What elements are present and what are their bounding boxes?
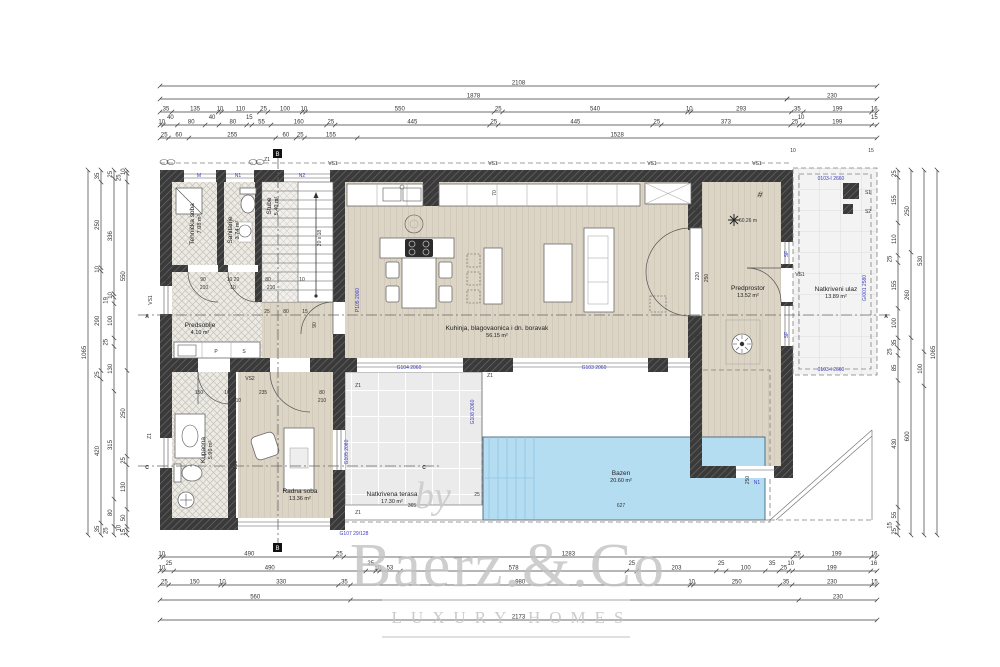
- entrance-floor: [793, 168, 877, 375]
- annotation-label: 25: [264, 309, 270, 315]
- annotation-label: 210: [233, 398, 242, 404]
- dimension-label: 10: [787, 561, 794, 567]
- dimension-label: 100: [280, 107, 291, 113]
- annotation-label: 175: [695, 206, 701, 215]
- room-area: 5.96 m²: [208, 441, 214, 460]
- code-label: SF: [784, 251, 790, 257]
- dimension-label: 490: [244, 552, 255, 558]
- dimension-label: 100: [892, 317, 898, 328]
- dimension-label: 25: [327, 120, 334, 126]
- annotation-label: Z1: [487, 373, 493, 379]
- annotation-label: 220: [695, 272, 701, 281]
- dimension-label: 25: [108, 170, 114, 177]
- annotation-label: C: [145, 465, 149, 471]
- dimension-label: 15: [888, 521, 894, 528]
- dimension-label: 2108: [512, 81, 526, 87]
- dimension-label: 199: [832, 107, 843, 113]
- toilet-tank: [240, 188, 256, 194]
- cooktop: [405, 239, 433, 257]
- annotation-label: 10: [790, 148, 796, 154]
- dimension-label: 15: [121, 528, 127, 535]
- annotation-label: 20 x 18: [317, 230, 323, 247]
- annotation-label: 210: [200, 285, 209, 291]
- dimension-label: 336: [108, 230, 114, 241]
- sofa: [584, 228, 614, 312]
- annotation-label: 90: [200, 277, 206, 283]
- dimension-label: 290: [95, 315, 101, 326]
- annotation-label: 10: [230, 285, 236, 291]
- dimension-label: 130: [121, 481, 127, 492]
- annotation-label: 15: [302, 309, 308, 315]
- room-area: 17.30 m²: [381, 499, 403, 505]
- dimension-label: 600: [905, 431, 911, 442]
- svg-text:B: B: [275, 152, 279, 158]
- annotation-label: 80: [319, 390, 325, 396]
- annotation-label: 235: [259, 390, 268, 396]
- annotation-label: C: [422, 465, 426, 471]
- watermark-tagline: LUXURY HOMES: [391, 608, 632, 627]
- annotation-label: 250: [745, 476, 751, 485]
- watermark-by: by: [415, 475, 451, 517]
- code-label: SF: [784, 332, 790, 338]
- dimension-label: 490: [265, 566, 276, 572]
- room-area: 3.74 m²: [235, 221, 241, 240]
- dimension-label: 80: [108, 509, 114, 516]
- dimension-label: 85: [892, 364, 898, 371]
- dimension-label: 250: [95, 219, 101, 230]
- annotation-label: 627: [617, 503, 626, 509]
- dimension-label: 540: [590, 107, 601, 113]
- annotation-label: 80: [265, 277, 271, 283]
- annotation-label: 35: [163, 277, 169, 283]
- dimension-label: 80: [188, 120, 195, 126]
- code-label: N2: [299, 173, 306, 179]
- chair: [439, 262, 452, 278]
- room-label: Radna soba: [282, 488, 317, 495]
- dimension-label: 25: [165, 561, 172, 567]
- annotation-label: 25: [474, 492, 480, 498]
- dimension-label: 25: [95, 371, 101, 378]
- dimension-label: 25: [718, 561, 725, 567]
- dimension-label: 10: [217, 107, 224, 113]
- dimension-label: 16: [871, 561, 878, 567]
- annotation-label: VS1: [752, 161, 762, 167]
- room-label: Stube: [266, 197, 273, 214]
- dimension-label: 420: [95, 445, 101, 456]
- dimension-label: 100: [108, 315, 114, 326]
- column: [423, 182, 439, 206]
- annotation-label: VS1: [488, 161, 498, 167]
- room-label: Natkriveni ulaz: [815, 286, 858, 293]
- annotation-label: 10 20: [227, 277, 240, 283]
- annotation-label: A: [884, 314, 888, 320]
- dimension-label: 203: [671, 566, 682, 572]
- code-label: G104 2060: [397, 365, 422, 371]
- dimension-label: 35: [341, 580, 348, 586]
- floor-plan-canvas: #: [0, 0, 1000, 667]
- dimension-label: 230: [827, 94, 838, 100]
- annotation-label: Z1: [355, 383, 361, 389]
- annotation-label: 10: [299, 277, 305, 283]
- dimension-label: 25: [491, 120, 498, 126]
- annotation-label: VS2: [245, 376, 255, 382]
- stair-landing-floor: [262, 302, 333, 365]
- dimension-label: 25: [888, 348, 894, 355]
- room-label: Kupaona: [200, 437, 207, 463]
- dimension-label: 10: [686, 107, 693, 113]
- dimension-label: 25: [161, 580, 168, 586]
- dimension-label: 10: [798, 115, 805, 121]
- code-label: N1: [235, 173, 242, 179]
- annotation-label: S2: [865, 209, 871, 215]
- code-label: P105 2060: [355, 288, 361, 312]
- dimension-label: 25: [297, 133, 304, 139]
- room-label: Bazen: [612, 470, 631, 477]
- dimension-label: 250: [121, 408, 127, 419]
- dimension-label: 155: [892, 195, 898, 206]
- annotation-label: 80: [283, 309, 289, 315]
- dimension-label: 445: [570, 120, 581, 126]
- dimension-label: 35: [783, 580, 790, 586]
- chair: [386, 286, 399, 302]
- toilet: [182, 465, 202, 481]
- annotation-label: S1: [865, 190, 871, 196]
- code-label: N1: [754, 480, 761, 486]
- annotation-label: A: [145, 314, 149, 320]
- room-label: Predsoblje: [185, 322, 216, 329]
- dining-table: [402, 258, 436, 308]
- dimension-label: 40: [167, 115, 174, 121]
- dimension-label: 260: [905, 289, 911, 300]
- dimension-label: 1528: [610, 133, 624, 139]
- dimension-label: 25: [495, 107, 502, 113]
- annotation-label: 250: [704, 274, 710, 283]
- toilet: [241, 195, 255, 213]
- dimension-label: 10: [158, 120, 165, 126]
- dimension-label: 110: [892, 234, 898, 244]
- dimension-label: 550: [121, 271, 127, 282]
- dimension-label: 15: [246, 115, 253, 121]
- dimension-label: 100: [918, 363, 924, 374]
- dimension-label: 135: [190, 107, 201, 113]
- annotation-label: 210: [318, 398, 327, 404]
- watermark-name: Baerz.&.Co: [350, 532, 666, 600]
- dimension-label: 25: [104, 527, 110, 534]
- code-label: G108 2060: [470, 399, 476, 424]
- dimension-label: 40: [209, 115, 216, 121]
- terrace-floor: [345, 372, 482, 505]
- dimension-label: 315: [108, 439, 114, 450]
- room-area: 5.40 m²: [274, 197, 280, 216]
- chair: [439, 286, 452, 302]
- dimension-label: 199: [832, 552, 843, 558]
- dimension-label: 160: [294, 120, 305, 126]
- console: [484, 248, 502, 304]
- dimension-label: 330: [276, 580, 287, 586]
- annotation-label: 210: [267, 285, 276, 291]
- annotation-label: Z1: [147, 433, 153, 439]
- dimension-label: 10: [219, 580, 226, 586]
- dimension-label: 25: [888, 255, 894, 262]
- dimension-label: 430: [892, 438, 898, 449]
- dimension-label: 25: [161, 133, 168, 139]
- kitchen-counter: [347, 184, 423, 206]
- dimension-label: 19: [104, 296, 110, 303]
- dimension-label: 25: [104, 338, 110, 345]
- annotation-label: 90: [312, 322, 318, 328]
- dimension-label: 230: [827, 580, 838, 586]
- annotation-label: VS1: [148, 295, 154, 305]
- dimension-label: 25: [260, 107, 267, 113]
- annotation-label: VS1: [795, 272, 805, 278]
- code-label: 0103-I 2660: [818, 176, 845, 182]
- annotation-label: 15: [868, 148, 874, 154]
- dimension-label: 25: [654, 120, 661, 126]
- dimension-label: 80: [230, 120, 237, 126]
- annotation-label: Z1: [355, 510, 361, 516]
- room-area: 7.08 m²: [197, 215, 203, 234]
- dimension-label: 35: [769, 561, 776, 567]
- svg-text:B: B: [275, 546, 279, 552]
- code-label: G/001 2580: [862, 275, 868, 301]
- dimension-label: 1065: [931, 345, 937, 359]
- dimension-label: 550: [395, 107, 406, 113]
- dimension-label: 100: [741, 566, 752, 572]
- dimension-label: 560: [250, 595, 261, 601]
- dimension-label: 250: [732, 580, 743, 586]
- dimension-label: 10: [95, 265, 101, 272]
- chair: [386, 262, 399, 278]
- dimension-label: 150: [190, 580, 201, 586]
- dimension-label: 10: [688, 580, 695, 586]
- room-area: 13.89 m²: [825, 294, 847, 300]
- dimension-label: 1878: [467, 94, 481, 100]
- dimension-label: 445: [407, 120, 418, 126]
- room-area: 4.10 m²: [191, 330, 210, 336]
- dimension-label: 60: [283, 133, 290, 139]
- dimension-label: 373: [721, 120, 732, 126]
- annotation-label: Z1: [264, 157, 270, 163]
- room-area: 13.52 m²: [737, 293, 759, 299]
- dimension-label: 293: [736, 107, 747, 113]
- dimension-label: 35: [163, 107, 170, 113]
- dimension-label: 10: [121, 168, 127, 175]
- dimension-label: 250: [905, 205, 911, 216]
- room-label: Tehnička soba: [189, 203, 196, 245]
- dimension-label: 25: [117, 174, 123, 181]
- annotation-label: VS1: [647, 161, 657, 167]
- room-label: Sanitarije: [227, 216, 234, 243]
- toilet-tank: [174, 464, 181, 482]
- floor-plan-page: #: [0, 0, 1000, 667]
- dimension-label: 230: [833, 595, 844, 601]
- dimension-label: 10: [158, 552, 165, 558]
- dimension-label: 155: [326, 133, 337, 139]
- dimension-label: 130: [108, 363, 114, 374]
- room-label: Natkrivena terasa: [367, 491, 418, 498]
- room-area: 13.36 m²: [289, 496, 311, 502]
- dimension-label: 55: [258, 120, 265, 126]
- code-label: G103 2060: [582, 365, 607, 371]
- dimension-label: 35: [892, 339, 898, 346]
- annotation-label: 60.26 m: [739, 218, 757, 224]
- dimension-label: 25: [794, 552, 801, 558]
- annotation-label: 70: [492, 190, 498, 196]
- coffee-table: [544, 244, 572, 302]
- room-area: 56.15 m²: [486, 333, 508, 339]
- dimension-label: 50: [121, 514, 127, 521]
- dimension-label: 25: [892, 527, 898, 534]
- dimension-label: 15: [871, 115, 878, 121]
- dimension-label: 35: [794, 107, 801, 113]
- dimension-label: 10: [301, 107, 308, 113]
- annotation-label: 135: [695, 333, 701, 342]
- annotation-label: 150: [195, 390, 204, 396]
- dimension-label: 25: [121, 456, 127, 463]
- dimension-label: 55: [892, 511, 898, 518]
- code-label: 0103-I 2660: [818, 367, 845, 373]
- dimension-label: 155: [892, 280, 898, 291]
- dimension-label: 255: [227, 133, 238, 139]
- code-label: M: [197, 173, 201, 179]
- dimension-label: 199: [827, 566, 838, 572]
- dimension-label: 35: [95, 172, 101, 179]
- kitchen-counter: [439, 184, 640, 206]
- annotation-label: 295: [233, 461, 239, 470]
- code-label: G105 2060: [344, 439, 350, 464]
- room-label: Kuhinja, blagovaonica i dn. boravak: [446, 325, 549, 332]
- dimension-label: 25: [892, 170, 898, 177]
- dimension-label: 110: [236, 107, 246, 113]
- dimension-label: 199: [832, 120, 843, 126]
- dimension-label: 60: [175, 133, 182, 139]
- room-label: Predprostor: [731, 285, 766, 292]
- annotation-label: 10: [224, 390, 230, 396]
- room-area: 20.60 m²: [610, 478, 632, 484]
- dimension-label: 530: [918, 255, 924, 266]
- dimension-label: 25: [336, 552, 343, 558]
- dimension-label: 1065: [82, 345, 88, 359]
- annotation-label: VS1: [328, 161, 338, 167]
- dimension-label: 35: [95, 525, 101, 532]
